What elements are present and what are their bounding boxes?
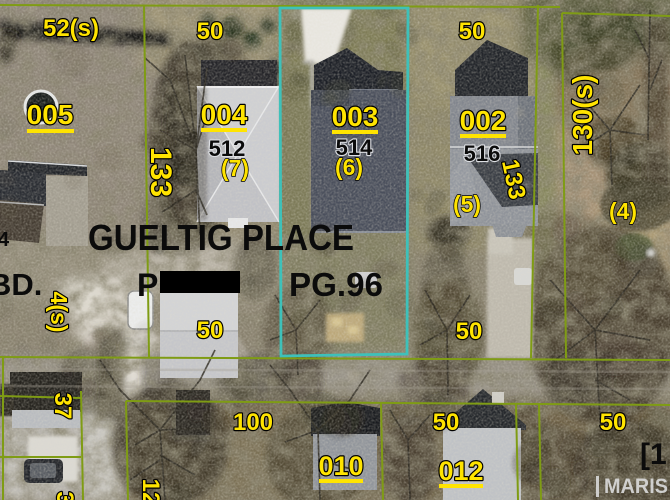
svg-text:50: 50	[600, 409, 627, 436]
svg-text:(7): (7)	[221, 155, 249, 181]
svg-text:50: 50	[456, 318, 483, 345]
svg-text:(5): (5)	[453, 191, 481, 217]
svg-text:3: 3	[51, 491, 78, 500]
svg-text:50: 50	[433, 409, 460, 436]
svg-text:100: 100	[233, 409, 273, 436]
svg-text:003: 003	[332, 101, 379, 132]
svg-text:GUELTIG PLACE: GUELTIG PLACE	[88, 217, 354, 258]
svg-text:50: 50	[459, 18, 486, 45]
svg-text:005: 005	[27, 99, 74, 130]
svg-text:004: 004	[201, 99, 248, 130]
svg-text:4(s): 4(s)	[46, 292, 72, 333]
svg-text:516: 516	[464, 141, 501, 166]
svg-text:(6): (6)	[335, 154, 363, 180]
svg-text:12: 12	[137, 479, 164, 500]
svg-text:37: 37	[49, 393, 76, 420]
svg-text:50: 50	[197, 18, 224, 45]
svg-text:010: 010	[318, 451, 363, 481]
svg-text:002: 002	[460, 105, 507, 136]
svg-text:(4): (4)	[609, 198, 637, 224]
svg-text:4: 4	[0, 229, 10, 251]
svg-text:P: P	[137, 267, 158, 303]
svg-text:[1: [1	[640, 438, 667, 471]
svg-text:130(s): 130(s)	[567, 75, 598, 156]
svg-text:MARIS: MARIS	[604, 475, 668, 498]
svg-text:50: 50	[197, 317, 224, 344]
svg-text:PG.96: PG.96	[289, 266, 383, 303]
svg-text:52(s): 52(s)	[43, 15, 99, 42]
svg-text:012: 012	[438, 456, 483, 486]
svg-text:BD.: BD.	[0, 267, 42, 302]
svg-text:133: 133	[144, 147, 177, 197]
